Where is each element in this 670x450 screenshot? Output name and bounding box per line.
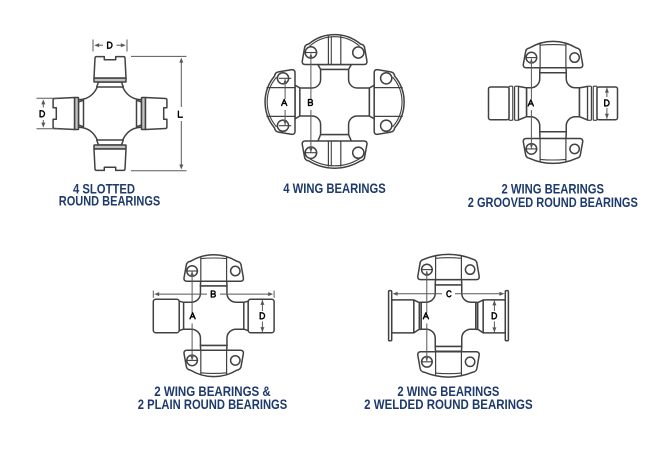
svg-text:2 GROOVED ROUND BEARINGS: 2 GROOVED ROUND BEARINGS: [468, 194, 638, 210]
svg-text:2 PLAIN ROUND BEARINGS: 2 PLAIN ROUND BEARINGS: [138, 396, 288, 412]
svg-text:4 WING BEARINGS: 4 WING BEARINGS: [283, 180, 386, 196]
svg-text:2 WELDED ROUND BEARINGS: 2 WELDED ROUND BEARINGS: [364, 396, 533, 412]
svg-text:ROUND BEARINGS: ROUND BEARINGS: [59, 193, 161, 209]
